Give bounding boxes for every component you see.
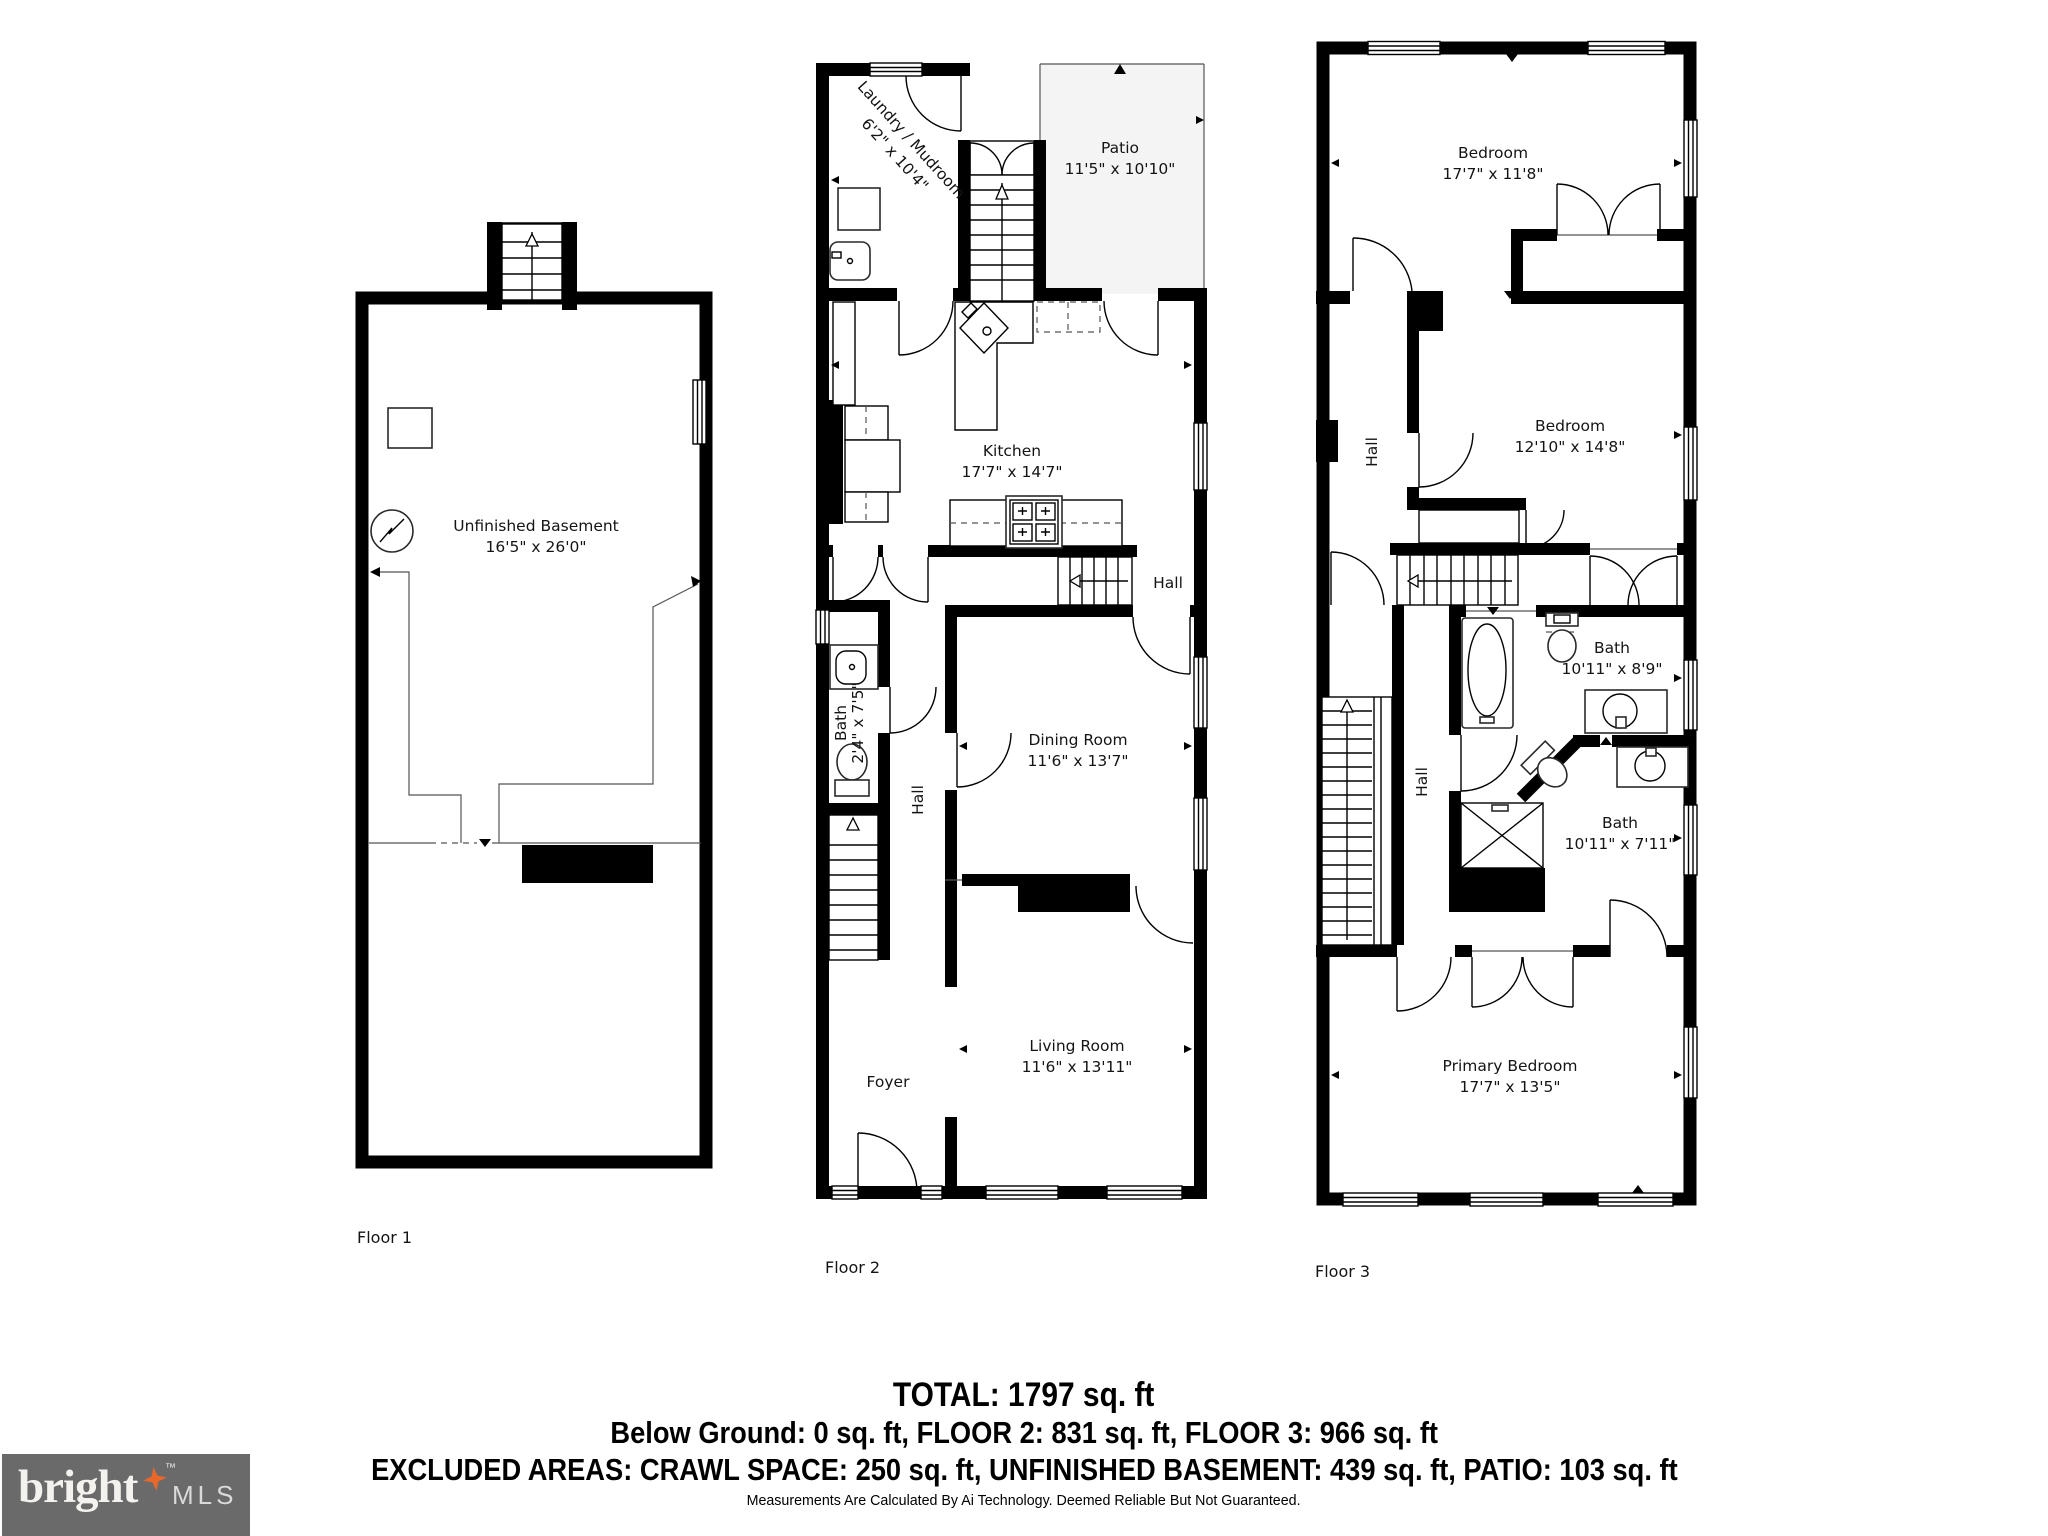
floorplan-page: .ow{fill:#fff;stroke:#000;stroke-width:1…	[0, 0, 2048, 1536]
floor1-plan: Unfinished Basement 16'5" x 26'0" Floor …	[357, 222, 706, 1247]
room-label-primary: Primary Bedroom	[1443, 1057, 1578, 1075]
floor2-label: Floor 2	[825, 1258, 880, 1277]
room-label-bedroom2: Bedroom	[1535, 417, 1605, 435]
hall-doorways	[833, 557, 928, 602]
floor2-plan: Laundry / Mudroom 6'2" x 10'4" Patio 11'…	[816, 63, 1207, 1277]
room-label-kitchen: Kitchen	[983, 442, 1041, 460]
laundry-sink-symbol	[830, 242, 870, 280]
floor3-long-stairs	[1322, 697, 1392, 945]
total-area: TOTAL: 1797 sq. ft	[0, 1376, 2048, 1414]
excluded-areas: EXCLUDED AREAS: CRAWL SPACE: 250 sq. ft,…	[0, 1451, 2048, 1488]
area-summary: TOTAL: 1797 sq. ft Below Ground: 0 sq. f…	[0, 1376, 2048, 1511]
dining-door-upper	[1133, 617, 1190, 674]
room-dims-bath1: 10'11" x 8'9"	[1562, 660, 1663, 678]
room-label-floor2-bath: Bath 2'4" x 7'5"	[832, 682, 867, 763]
floor3-label: Floor 3	[1315, 1262, 1370, 1281]
room-dims-kitchen: 17'7" x 14'7"	[962, 463, 1063, 481]
svg-text:Hall: Hall	[1413, 767, 1431, 797]
bath1-vanity-symbol	[1585, 690, 1667, 733]
patio-kitchen-door	[1104, 301, 1158, 355]
floor3-mid-stairs	[1397, 555, 1518, 605]
room-label-foyer: Foyer	[867, 1073, 911, 1091]
patio-area	[1040, 64, 1204, 294]
kitchen-door-left	[899, 301, 953, 355]
bath2-vanity-symbol	[1617, 747, 1688, 787]
bath1-toilet-symbol	[1546, 613, 1578, 662]
room-dims-patio: 11'5" x 10'10"	[1065, 160, 1176, 178]
furnace-symbol	[388, 408, 432, 448]
floor3-plan: Bedroom 17'7" x 11'8" Hall Bedroom 12'10…	[1315, 42, 1697, 1282]
disclaimer-text: Measurements Are Calculated By Ai Techno…	[0, 1491, 2048, 1511]
room-label-hall-lower: Hall	[909, 785, 927, 815]
room-dims-basement: 16'5" x 26'0"	[486, 538, 587, 556]
svg-text:2'4" x 7'5": 2'4" x 7'5"	[849, 682, 867, 763]
chimney-block	[522, 845, 653, 883]
shower-symbol	[1461, 803, 1543, 868]
room-label-floor3-hall-upper: Hall	[1363, 437, 1381, 467]
logo-suffix: MLS	[172, 1480, 237, 1511]
room-dims-living: 11'6" x 13'11"	[1022, 1058, 1133, 1076]
basement-window	[693, 380, 706, 444]
room-label-bedroom1: Bedroom	[1458, 144, 1528, 162]
logo-trademark: ™	[165, 1462, 176, 1474]
floor1-stairs	[487, 222, 577, 310]
svg-text:Bath: Bath	[832, 705, 850, 741]
floor2-stairs-up	[970, 141, 1034, 301]
room-dims-bedroom2: 12'10" x 14'8"	[1515, 438, 1626, 456]
room-label-basement: Unfinished Basement	[453, 517, 619, 535]
logo-wordmark: bright	[18, 1460, 137, 1514]
front-door	[858, 1133, 917, 1192]
floorplan-canvas: .ow{fill:#fff;stroke:#000;stroke-width:1…	[0, 0, 2048, 1536]
room-label-hall-upper: Hall	[1153, 574, 1183, 592]
room-dims-primary: 17'7" x 13'5"	[1460, 1078, 1561, 1096]
brightmls-logo: bright ™ MLS	[2, 1454, 250, 1536]
svg-text:Hall: Hall	[909, 785, 927, 815]
room-label-bath1: Bath	[1594, 639, 1630, 657]
svg-text:Hall: Hall	[1363, 437, 1381, 467]
room-dims-dining: 11'6" x 13'7"	[1028, 752, 1129, 770]
room-dims-bedroom1: 17'7" x 11'8"	[1443, 165, 1544, 183]
laundry-window	[870, 63, 922, 76]
room-label-floor3-hall-lower: Hall	[1413, 767, 1431, 797]
electrical-panel-symbol	[371, 510, 413, 552]
dining-door	[957, 733, 1011, 787]
stove-symbol	[950, 496, 1122, 548]
room-label-bath2: Bath	[1602, 814, 1638, 832]
washer-symbol	[838, 188, 880, 230]
laundry-door	[906, 76, 961, 131]
room-label-dining: Dining Room	[1028, 731, 1127, 749]
floor2-basement-stairs	[829, 815, 878, 960]
room-label-patio: Patio	[1101, 139, 1139, 157]
floor2-stairs-down	[1058, 557, 1132, 605]
floor3-bottom-windows	[1343, 1193, 1673, 1206]
floor1-label: Floor 1	[357, 1228, 412, 1247]
floor-areas: Below Ground: 0 sq. ft, FLOOR 2: 831 sq.…	[0, 1414, 2048, 1451]
room-label-living: Living Room	[1029, 1037, 1124, 1055]
room-dims-bath2: 10'11" x 7'11"	[1565, 835, 1676, 853]
floor2-bath-door	[890, 687, 936, 733]
floor2-bath-window	[816, 610, 829, 644]
